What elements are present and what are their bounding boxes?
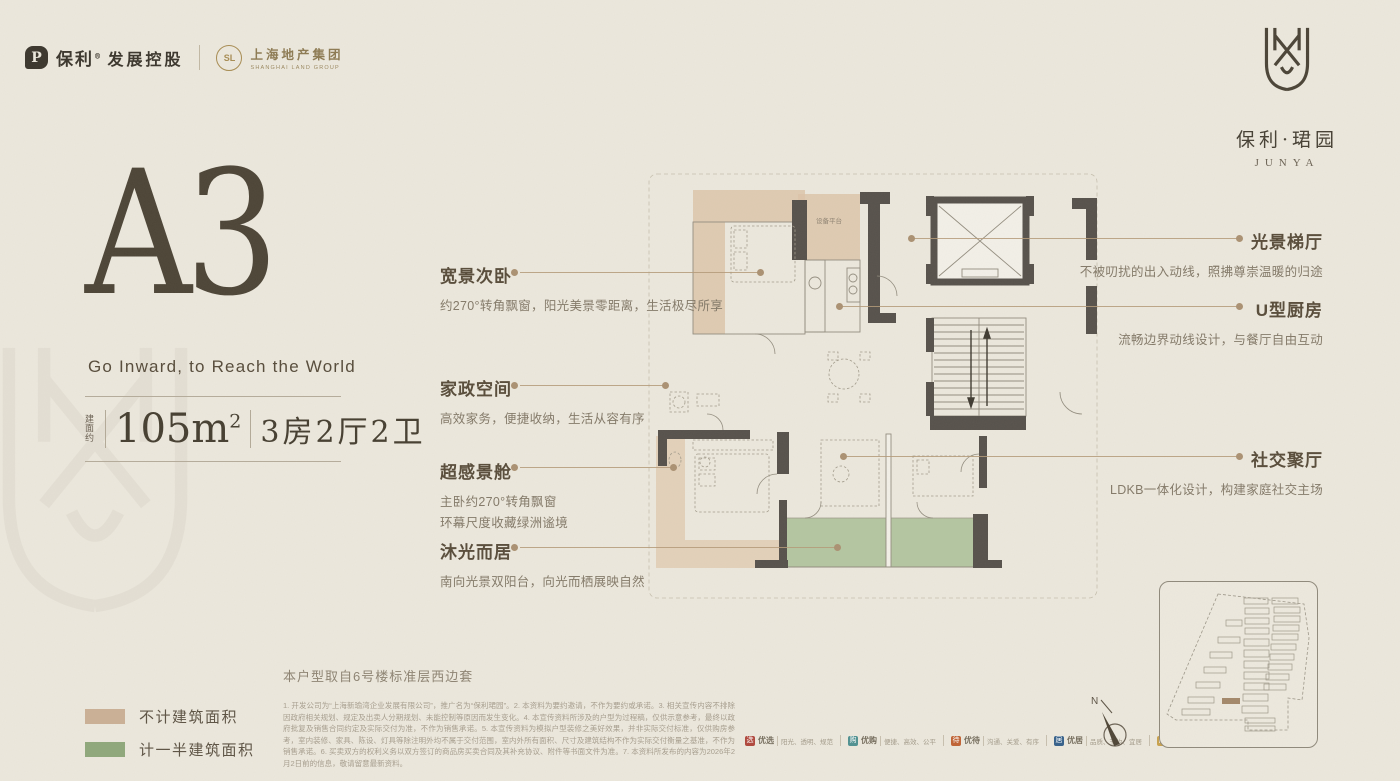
site-map-highlight <box>1222 698 1240 704</box>
badge-desc: 沟通、关爱、有序 <box>983 736 1039 746</box>
equipment-platform-label: 设备平台 <box>816 216 842 225</box>
callout-elevator-hall: 光景梯厅 不被叨扰的出入动线，照拂尊崇温暖的归途 <box>993 228 1323 283</box>
callout-desc: 主卧约270°转角飘窗 <box>440 492 775 513</box>
poly-brand-suffix: 发展控股 <box>107 52 183 69</box>
shanghai-land-en: SHANGHAI LAND GROUP <box>250 65 343 71</box>
leader-dot <box>836 303 843 310</box>
badge: 选 优选 阳光、透明、规范 <box>738 735 840 746</box>
project-logo: 保利·珺园 JUNYA <box>1222 26 1352 169</box>
shanghai-land-cn: 上海地产集团 <box>250 44 343 63</box>
badge-desc: 阳光、透明、规范 <box>777 736 833 746</box>
callout-title: 社交聚厅 <box>993 446 1323 471</box>
badge-desc: 便捷、高效、公平 <box>880 736 936 746</box>
leader-dot <box>834 544 841 551</box>
spec-separator <box>250 410 251 448</box>
registered-mark: ® <box>94 51 103 60</box>
site-map-drawing <box>1160 582 1316 746</box>
callout-desc: 南向光景双阳台，向光而栖展映自然 <box>440 572 775 593</box>
watermark-monogram-icon <box>0 340 235 700</box>
callout-desc: 高效家务，便捷收纳，生活从容有序 <box>440 409 775 430</box>
callout-desc: 流畅边界动线设计，与餐厅自由互动 <box>993 330 1323 351</box>
badge-icon: 购 <box>848 736 858 746</box>
callout-desc: 环幕尺度收藏绿洲谧境 <box>440 513 775 534</box>
header-divider <box>199 45 200 70</box>
area-prefix: 建面约 <box>85 415 96 444</box>
badge-label: 优选 <box>758 735 774 746</box>
legend-label: 不计建筑面积 <box>139 706 238 727</box>
leader-dot <box>908 235 915 242</box>
callout-title: 超感景舱 <box>440 458 775 483</box>
developer-logos: P 保利® 发展控股 SL 上海地产集团 SHANGHAI LAND GROUP <box>25 44 343 71</box>
badge: 待 优待 沟通、关爱、有序 <box>943 735 1046 746</box>
site-map <box>1159 581 1318 748</box>
disclaimer-text: 1. 开发公司为“上海新瑜湾企业发展有限公司”，推广名为“保利珺园”。2. 本资… <box>283 700 735 769</box>
callout-balcony: 沐光而居 南向光景双阳台，向光而栖展映自然 <box>440 538 775 593</box>
compass-icon: N <box>1088 690 1136 752</box>
project-name-cn: 保利·珺园 <box>1222 125 1352 152</box>
site-buildings <box>1182 598 1300 731</box>
callout-title: 宽景次卧 <box>440 262 775 287</box>
tagline: Go Inward, to Reach the World <box>88 357 356 377</box>
badge-icon: 待 <box>951 736 961 746</box>
area-value: 105m2 <box>115 406 241 452</box>
plan-balcony-areas <box>785 518 977 567</box>
callout-desc: 约270°转角飘窗，阳光美景零距离，生活极尽所享 <box>440 296 775 317</box>
unit-code: A3 <box>85 148 272 320</box>
callout-title: 沐光而居 <box>440 538 775 563</box>
shanghai-land-text: 上海地产集团 SHANGHAI LAND GROUP <box>250 44 343 71</box>
compass-n-label: N <box>1091 696 1098 707</box>
callout-title: 光景梯厅 <box>993 228 1323 253</box>
project-monogram-icon <box>1259 26 1315 112</box>
source-note: 本户型取自6号楼标准层西边套 <box>283 666 473 685</box>
unit-spec: 建面约 105m2 3房2厅2卫 <box>85 404 426 454</box>
legend-item-half: 计一半建筑面积 <box>85 739 255 760</box>
badge-icon: 居 <box>1054 736 1064 746</box>
project-name-en: JUNYA <box>1222 157 1352 169</box>
badge-icon: 选 <box>745 736 755 746</box>
callout-master-bedroom: 超感景舱 主卧约270°转角飘窗 环幕尺度收藏绿洲谧境 <box>440 458 775 534</box>
legend-swatch-green <box>85 742 125 757</box>
poly-brand-cn: 保利® <box>56 50 103 70</box>
poly-brand-text: 保利® 发展控股 <box>56 45 183 70</box>
poly-logo-icon: P <box>25 46 48 69</box>
callout-living-room: 社交聚厅 LDKB一体化设计，构建家庭社交主场 <box>993 446 1323 501</box>
leader-dot <box>840 453 847 460</box>
badge-label: 优待 <box>964 735 980 746</box>
callout-housekeeping: 家政空间 高效家务，便捷收纳，生活从容有序 <box>440 375 775 430</box>
legend-label: 计一半建筑面积 <box>139 739 255 760</box>
area-legend: 不计建筑面积 计一半建筑面积 <box>85 706 255 772</box>
rule-bottom <box>85 461 341 462</box>
callout-desc: 不被叨扰的出入动线，照拂尊崇温暖的归途 <box>993 262 1323 283</box>
badge-label: 优居 <box>1067 735 1083 746</box>
rule-top <box>85 396 341 397</box>
spec-separator <box>105 410 106 448</box>
callout-title: 家政空间 <box>440 375 775 400</box>
area-sup: 2 <box>229 411 241 433</box>
badge: 购 优购 便捷、高效、公平 <box>840 735 943 746</box>
legend-item-excluded: 不计建筑面积 <box>85 706 255 727</box>
layout-spec: 3房2厅2卫 <box>260 407 425 451</box>
callout-title: U型厨房 <box>993 296 1323 321</box>
shanghai-land-emblem-icon: SL <box>216 45 242 71</box>
callout-kitchen: U型厨房 流畅边界动线设计，与餐厅自由互动 <box>993 296 1323 351</box>
legend-swatch-tan <box>85 709 125 724</box>
badge-label: 优购 <box>861 735 877 746</box>
callout-desc: LDKB一体化设计，构建家庭社交主场 <box>993 480 1323 501</box>
callout-secondary-bedroom: 宽景次卧 约270°转角飘窗，阳光美景零距离，生活极尽所享 <box>440 262 775 317</box>
site-boundary <box>1167 594 1309 730</box>
